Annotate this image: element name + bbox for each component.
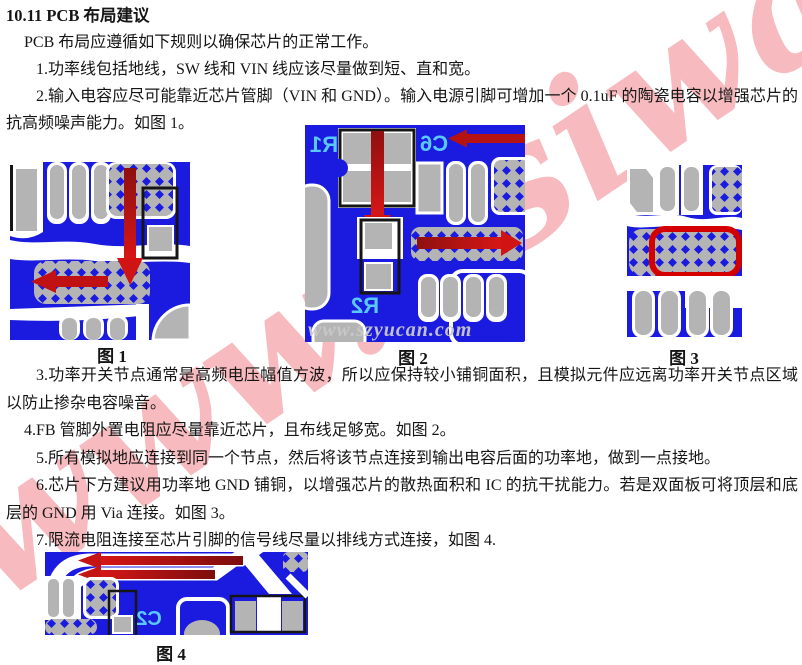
rule-item-3: 3.功率开关节点通常是高频电压幅值方波，所以应保持较小铺铜面积，且模拟元件应远离… xyxy=(6,362,798,417)
notch xyxy=(330,159,348,177)
lower-text-block: 3.功率开关节点通常是高频电压幅值方波，所以应保持较小铺铜面积，且模拟元件应远离… xyxy=(6,362,798,555)
pad xyxy=(16,169,37,231)
pad xyxy=(365,223,392,249)
svg-text:R1: R1 xyxy=(310,132,338,157)
clearance-slot xyxy=(136,304,149,340)
section-heading: 10.11 PCB 布局建议 xyxy=(6,2,798,29)
pad xyxy=(630,169,653,212)
figure-1-pcb-layout-image xyxy=(10,162,190,340)
silkscreen-label-r2: R2 xyxy=(351,293,379,318)
pad xyxy=(305,185,329,309)
bottom-pads xyxy=(59,315,128,340)
silkscreen-label-c2: C2 xyxy=(136,608,162,630)
upper-text-block: 10.11 PCB 布局建议 PCB 布局应遵循如下规则以确保芯片的正常工作。 … xyxy=(6,2,798,137)
intro-text: PCB 布局应遵循如下规则以确保芯片的正常工作。 xyxy=(6,29,798,56)
figure-4-caption: 图 4 xyxy=(139,640,203,665)
rule-item-6: 6.芯片下方建议用功率地 GND 铺铜，以增强芯片的散热面积和 IC 的抗干扰能… xyxy=(6,472,798,527)
rule-item-7: 7.限流电阻连接至芯片引脚的信号线尽量以排线方式连接，如图 4. xyxy=(6,527,798,555)
top-pads xyxy=(47,162,111,224)
pad xyxy=(282,601,303,631)
rule-item-1: 1.功率线包括地线，SW 线和 VIN 线应该尽量做到短、直和宽。 xyxy=(6,56,798,83)
figure-2-pcb-layout-image: R1 C6 R2 xyxy=(305,125,525,342)
figure-4-pcb-layout-image: C2 xyxy=(45,552,308,635)
figure-2-watermark: www.szyucan.com xyxy=(308,319,472,341)
pad xyxy=(365,263,392,290)
pad xyxy=(148,226,173,252)
via-cluster xyxy=(86,580,116,616)
figure-3-pcb-layout-image xyxy=(627,165,742,337)
component-clearance xyxy=(257,596,281,632)
pad xyxy=(235,601,256,631)
svg-text:C6: C6 xyxy=(420,131,448,156)
board-edge-line xyxy=(10,165,13,231)
rule-item-5: 5.所有模拟地应连接到同一个节点，然后将该节点连接到输出电容后面的功率地，做到一… xyxy=(6,445,798,473)
via-cluster xyxy=(109,164,173,216)
via-cluster xyxy=(712,167,742,212)
via-array xyxy=(629,229,740,276)
rule-item-4: 4.FB 管脚外置电阻应尽量靠近芯片，且布线足够宽。如图 2。 xyxy=(6,417,798,445)
pad xyxy=(113,616,132,633)
via-cluster xyxy=(283,552,308,572)
document-page: www.nsiway.com 10.11 PCB 布局建议 PCB 布局应遵循如… xyxy=(0,0,802,665)
svg-text:R2: R2 xyxy=(351,293,379,318)
via-cluster xyxy=(494,160,525,212)
pad xyxy=(417,163,442,213)
silkscreen-label-c6: C6 xyxy=(420,131,448,156)
silkscreen-label-r1: R1 xyxy=(310,132,338,157)
svg-text:C2: C2 xyxy=(136,608,162,630)
via-row xyxy=(45,619,97,635)
